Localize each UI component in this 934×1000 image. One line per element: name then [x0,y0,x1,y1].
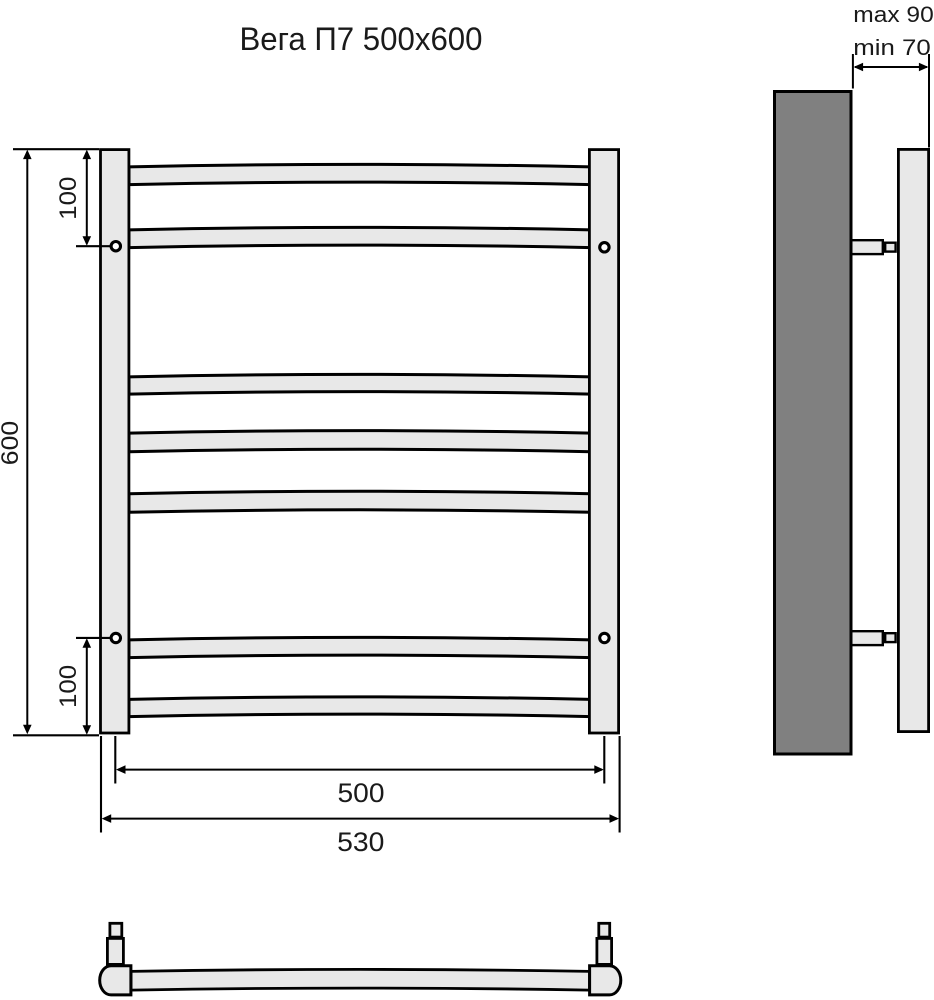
svg-text:530: 530 [337,827,384,857]
svg-text:600: 600 [0,421,24,466]
svg-text:max 90: max 90 [853,2,934,27]
svg-text:Вега П7 500x600: Вега П7 500x600 [240,21,483,57]
svg-text:500: 500 [338,778,385,808]
svg-text:100: 100 [56,665,82,708]
svg-text:min 70: min 70 [853,35,931,60]
svg-text:100: 100 [56,177,82,220]
